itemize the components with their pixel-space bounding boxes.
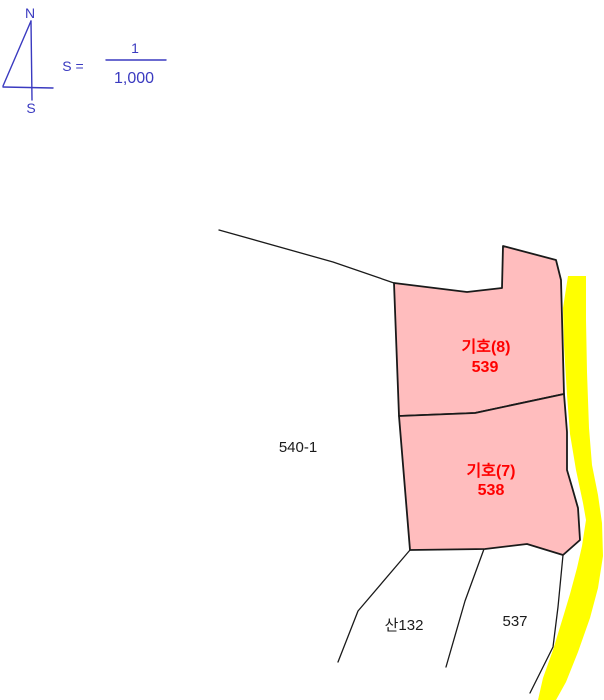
scale-label: S = — [62, 58, 83, 74]
north-arrow-horizontal-line — [3, 87, 53, 88]
parcel-539-number-label: 539 — [472, 359, 499, 376]
north-arrow-hypotenuse-line — [3, 21, 31, 86]
parcel-538-designation-label: 기호(7) — [467, 462, 516, 480]
parcel-539-polygon — [394, 246, 564, 416]
parcel-538-number-label: 538 — [478, 482, 505, 499]
boundary-line-san132-left — [338, 550, 410, 662]
parcel-540-1-label: 540-1 — [279, 439, 317, 456]
boundary-line-top — [219, 230, 394, 283]
scale-fraction-numerator: 1 — [131, 40, 139, 56]
boundary-line-san132-537 — [446, 549, 484, 667]
south-label: S — [26, 100, 35, 116]
north-label: N — [25, 5, 35, 21]
parcel-539-designation-label: 기호(8) — [462, 338, 511, 356]
parcel-537-label: 537 — [502, 613, 527, 630]
cadastral-map: 기호(8) 539 기호(7) 538 540-1 산132 537 N S S… — [0, 0, 604, 700]
parcel-san132-label: 산132 — [385, 617, 424, 634]
scale-fraction-denominator: 1,000 — [114, 70, 154, 87]
map-canvas: 기호(8) 539 기호(7) 538 540-1 산132 537 N S S… — [0, 0, 604, 700]
north-arrow: N S — [3, 5, 53, 116]
scale-notation: S = 1 1,000 — [62, 40, 166, 87]
